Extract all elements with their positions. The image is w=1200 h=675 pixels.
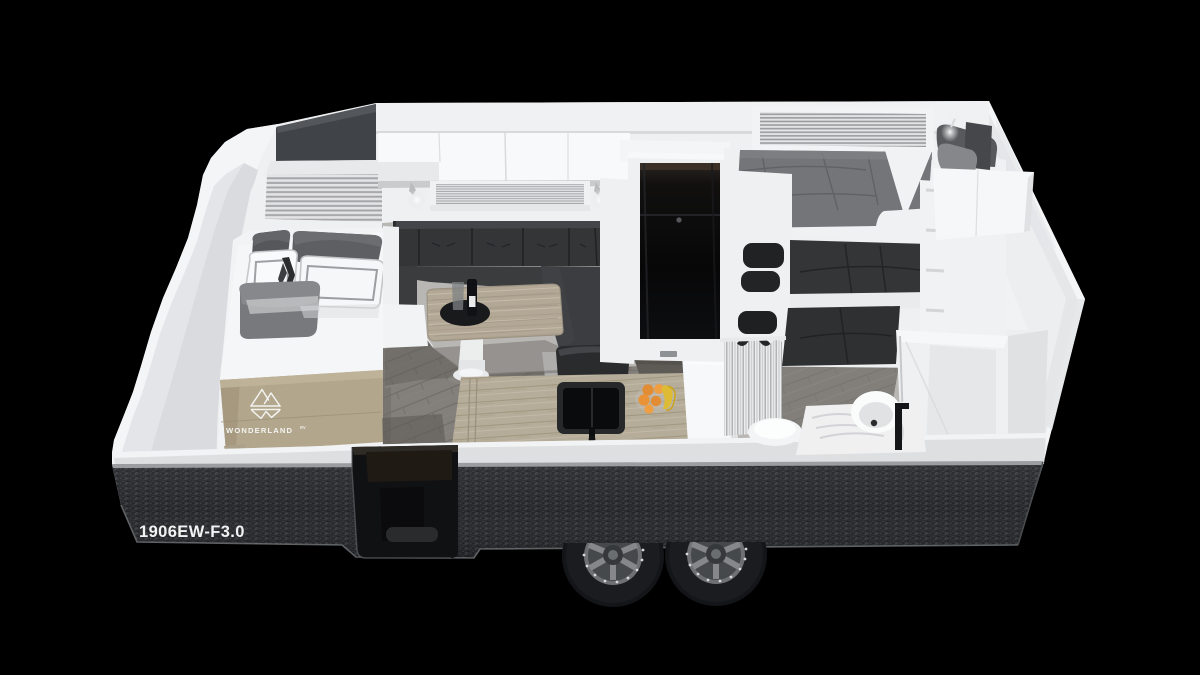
svg-text:RV: RV (300, 425, 306, 430)
svg-text:1906EW-F3.0: 1906EW-F3.0 (139, 523, 245, 541)
svg-text:WONDERLAND: WONDERLAND (226, 426, 293, 435)
